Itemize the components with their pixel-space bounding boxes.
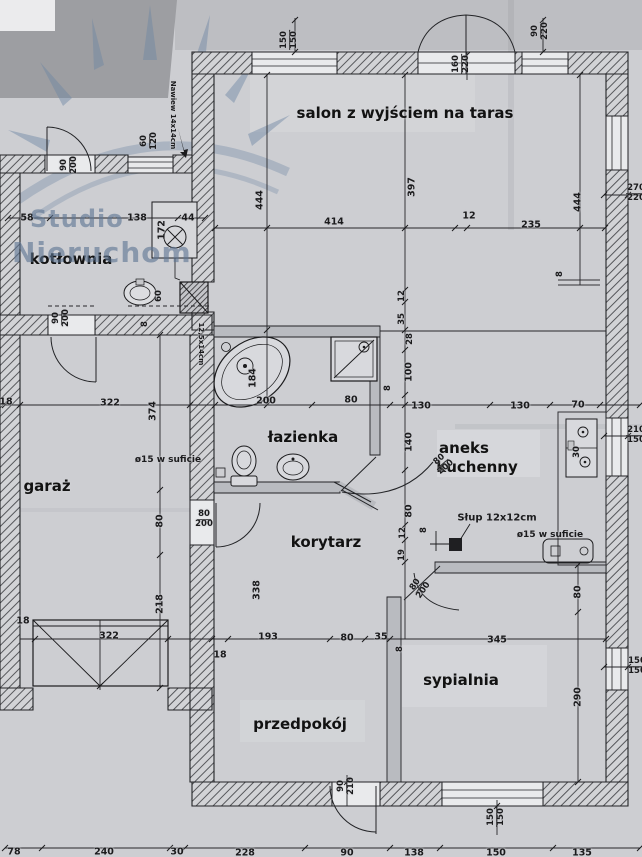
plan-annotations: salon z wyjściem na taraskotłowniałazien… xyxy=(0,0,642,857)
fraction-height: 150 xyxy=(291,31,300,49)
dimension-label: 290 xyxy=(573,687,584,707)
door-window-size-label: 160220 xyxy=(452,54,472,74)
dimension-label: 444 xyxy=(573,192,584,212)
dimension-label: 80 xyxy=(155,514,166,527)
dimension-label: 200 xyxy=(256,396,276,407)
dimension-label: 8 xyxy=(140,321,150,327)
dimension-label: 18 xyxy=(0,397,13,408)
door-window-size-label: 150150 xyxy=(280,30,300,50)
dimension-label: 18 xyxy=(16,616,29,627)
door-window-size-label: 150150 xyxy=(627,657,642,677)
fraction-height: 220 xyxy=(463,55,472,73)
fraction-height: 150 xyxy=(627,437,642,446)
dimension-label: 184 xyxy=(248,368,259,388)
dimension-label: 338 xyxy=(252,580,263,600)
dimension-label: Słup 12x12cm xyxy=(457,513,536,524)
dimension-label: 150 xyxy=(486,848,506,857)
door-window-size-label: 90210 xyxy=(337,777,357,795)
fraction-height: 200 xyxy=(71,156,80,174)
dimension-label: 140 xyxy=(404,432,415,452)
dimension-label: 100 xyxy=(404,362,415,382)
dimension-label: 130 xyxy=(510,401,530,412)
dimension-label: 135 xyxy=(572,848,592,857)
dimension-label: 78 xyxy=(7,847,20,857)
room-label: łazienka xyxy=(268,428,339,446)
dimension-label: 60 xyxy=(154,290,164,302)
door-window-size-label: 80200 xyxy=(407,575,433,601)
fraction-height: 210 xyxy=(348,777,357,795)
dimension-label: 414 xyxy=(324,217,344,228)
dimension-label: 444 xyxy=(255,190,266,210)
dimension-label: 80 xyxy=(344,395,357,406)
watermark-text-line1: Studio xyxy=(30,205,124,233)
dimension-label: 345 xyxy=(487,635,507,646)
dimension-label: 218 xyxy=(155,594,166,614)
dimension-label: 19 xyxy=(397,549,407,561)
dimension-label: 30 xyxy=(572,446,582,458)
dimension-label: 44 xyxy=(181,213,194,224)
door-window-size-label: 150150 xyxy=(487,807,507,827)
dimension-label: 12 xyxy=(397,290,407,302)
dimension-label: 397 xyxy=(407,177,418,197)
door-window-size-label: 270220 xyxy=(626,184,642,204)
dimension-label: 12,5x14cm xyxy=(197,323,205,366)
dimension-label: 8 xyxy=(395,646,405,652)
door-window-size-label: 210150 xyxy=(626,426,642,446)
dimension-label: 374 xyxy=(148,401,159,421)
dimension-label: 8 xyxy=(555,271,565,277)
fraction-height: 150 xyxy=(628,668,642,677)
dimension-label: 235 xyxy=(521,220,541,231)
dimension-label: 18 xyxy=(213,650,226,661)
room-label: przedpokój xyxy=(253,715,347,733)
dimension-label: 70 xyxy=(571,400,584,411)
room-label: salon z wyjściem na taras xyxy=(297,104,514,122)
fraction-height: 200 xyxy=(63,309,72,327)
dimension-label: 35 xyxy=(374,632,387,643)
watermark-text-line2: Nieruchom xyxy=(12,236,192,269)
dimension-label: 30 xyxy=(170,847,183,857)
dimension-label: ø15 w suficie xyxy=(517,530,583,540)
dimension-label: 35 xyxy=(397,313,407,325)
room-label: garaż xyxy=(23,477,70,495)
dimension-label: 8 xyxy=(383,385,393,391)
door-window-size-label: 90200 xyxy=(60,156,80,174)
fraction-height: 120 xyxy=(151,132,160,150)
dimension-label: 193 xyxy=(258,632,278,643)
door-window-size-label: 80200 xyxy=(195,510,213,530)
dimension-label: 90 xyxy=(340,848,353,857)
dimension-label: 12 xyxy=(462,211,475,222)
door-window-size-label: 90200 xyxy=(52,309,72,327)
dimension-label: 80 xyxy=(573,585,584,598)
fraction-height: 220 xyxy=(542,22,551,40)
floor-plan-photo: salon z wyjściem na taraskotłowniałazien… xyxy=(0,0,642,857)
dimension-label: 80 xyxy=(404,504,415,517)
dimension-label: 240 xyxy=(94,847,114,857)
fraction-height: 200 xyxy=(195,521,213,530)
door-window-size-label: 90220 xyxy=(531,22,551,40)
room-label: sypialnia xyxy=(423,671,499,689)
dimension-label: 12 xyxy=(398,527,408,539)
dimension-label: 228 xyxy=(235,848,255,857)
dimension-label: 138 xyxy=(127,213,147,224)
dimension-label: 130 xyxy=(411,401,431,412)
door-window-size-label: 60120 xyxy=(140,132,160,150)
dimension-label: 322 xyxy=(99,631,119,642)
dimension-label: 28 xyxy=(405,333,415,345)
dimension-label: 322 xyxy=(100,398,120,409)
dimension-label: 138 xyxy=(404,848,424,857)
fraction-height: 220 xyxy=(627,195,642,204)
dimension-label: 8 xyxy=(419,527,429,533)
fraction-height: 150 xyxy=(498,808,507,826)
dimension-label: ø15 w suficie xyxy=(135,455,201,465)
dimension-label: 80 xyxy=(340,633,353,644)
dimension-label: Nawiew 14x14cm xyxy=(169,81,177,150)
room-label: korytarz xyxy=(291,533,361,551)
